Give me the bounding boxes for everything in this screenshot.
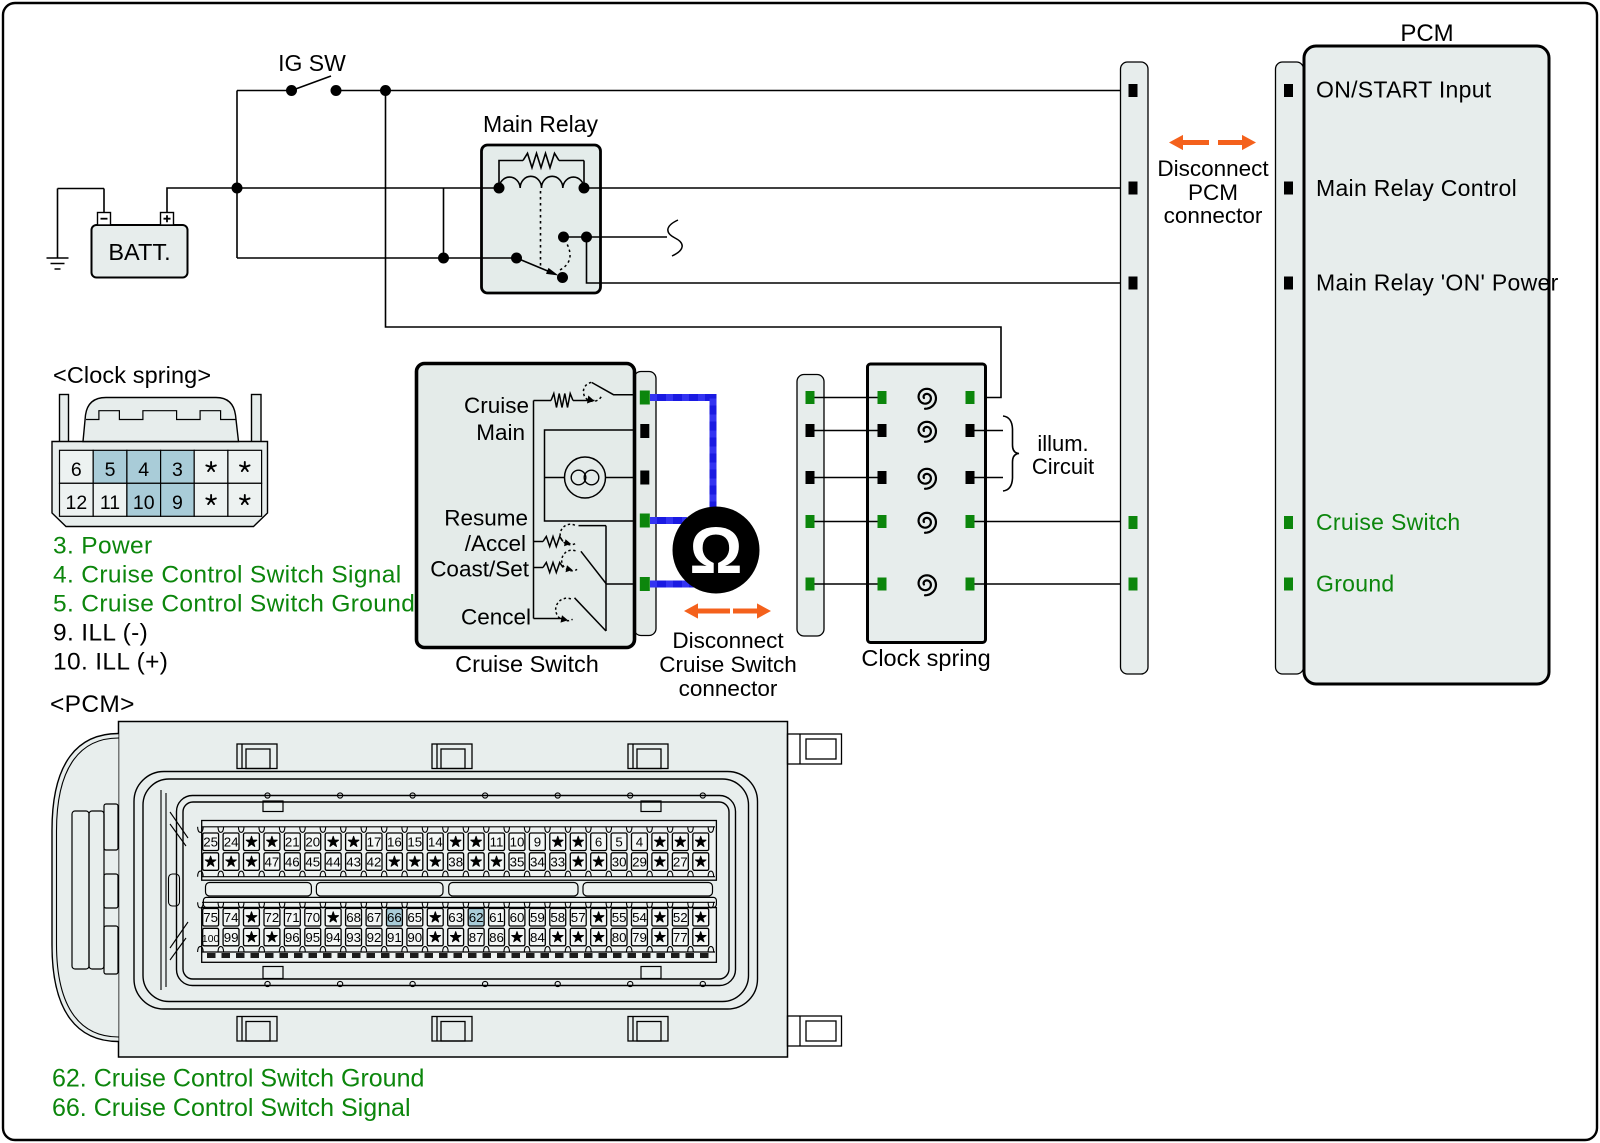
svg-text:Circuit: Circuit [1032, 454, 1094, 479]
svg-text:35: 35 [510, 855, 525, 870]
svg-text:34: 34 [530, 855, 545, 870]
svg-text:91: 91 [387, 930, 402, 945]
svg-text:55: 55 [612, 910, 627, 925]
svg-text:<Clock spring>: <Clock spring> [53, 362, 211, 388]
svg-text:21: 21 [285, 835, 300, 850]
svg-text:15: 15 [407, 835, 422, 850]
svg-text:IG SW: IG SW [278, 50, 346, 76]
svg-text:95: 95 [305, 930, 320, 945]
svg-text:11: 11 [100, 492, 120, 514]
svg-text:54: 54 [632, 910, 647, 925]
svg-text:58: 58 [550, 910, 565, 925]
svg-text:6: 6 [71, 459, 82, 481]
svg-text:77: 77 [673, 930, 688, 945]
svg-text:<PCM>: <PCM> [50, 691, 135, 718]
svg-text:43: 43 [346, 855, 361, 870]
svg-text:3. Power: 3. Power [53, 533, 152, 560]
svg-text:Ground: Ground [1316, 571, 1395, 597]
svg-text:93: 93 [346, 930, 361, 945]
svg-text:/Accel: /Accel [465, 531, 526, 556]
svg-text:27: 27 [673, 855, 688, 870]
svg-text:Resume: Resume [444, 506, 528, 531]
svg-text:38: 38 [448, 855, 463, 870]
svg-text:42: 42 [367, 855, 382, 870]
svg-text:99: 99 [224, 930, 239, 945]
svg-text:10: 10 [133, 492, 155, 514]
svg-text:47: 47 [265, 855, 280, 870]
svg-text:Disconnect: Disconnect [1157, 156, 1269, 181]
svg-text:ON/START Input: ON/START Input [1316, 77, 1492, 103]
svg-text:25: 25 [203, 835, 218, 850]
svg-text:14: 14 [428, 835, 443, 850]
svg-text:Main Relay 'ON' Power: Main Relay 'ON' Power [1316, 270, 1559, 296]
svg-text:96: 96 [285, 930, 300, 945]
svg-text:6: 6 [595, 835, 602, 850]
svg-text:connector: connector [1164, 203, 1263, 228]
svg-text:45: 45 [305, 855, 320, 870]
svg-text:62. Cruise Control Switch Grou: 62. Cruise Control Switch Ground [52, 1065, 424, 1093]
svg-text:9. ILL (-): 9. ILL (-) [53, 620, 148, 647]
svg-text:Main: Main [476, 420, 525, 445]
svg-text:71: 71 [285, 910, 300, 925]
svg-text:Main Relay: Main Relay [483, 111, 599, 137]
svg-text:90: 90 [407, 930, 422, 945]
svg-text:Cruise: Cruise [464, 393, 529, 418]
svg-text:10: 10 [510, 835, 525, 850]
svg-text:68: 68 [346, 910, 361, 925]
svg-text:4: 4 [636, 835, 643, 850]
svg-text:Disconnect: Disconnect [672, 628, 784, 653]
svg-text:Main Relay Control: Main Relay Control [1316, 175, 1517, 201]
svg-text:connector: connector [679, 676, 778, 701]
svg-text:Clock spring: Clock spring [861, 645, 990, 671]
svg-text:80: 80 [612, 930, 627, 945]
svg-text:63: 63 [448, 910, 463, 925]
svg-text:illum.: illum. [1037, 431, 1088, 456]
svg-text:94: 94 [326, 930, 341, 945]
svg-text:66. Cruise Control Switch Sign: 66. Cruise Control Switch Signal [52, 1094, 411, 1122]
svg-text:5: 5 [615, 835, 622, 850]
svg-text:60: 60 [510, 910, 525, 925]
svg-text:Cencel: Cencel [461, 605, 531, 630]
svg-text:PCM: PCM [1400, 20, 1453, 47]
svg-text:61: 61 [489, 910, 504, 925]
svg-text:57: 57 [571, 910, 586, 925]
svg-text:3: 3 [172, 459, 183, 481]
svg-text:44: 44 [326, 855, 341, 870]
svg-text:75: 75 [203, 910, 218, 925]
svg-text:70: 70 [305, 910, 320, 925]
svg-text:4. Cruise Control Switch Signa: 4. Cruise Control Switch Signal [53, 562, 402, 589]
svg-text:52: 52 [673, 910, 688, 925]
svg-text:PCM: PCM [1188, 180, 1238, 205]
svg-text:46: 46 [285, 855, 300, 870]
svg-text:5: 5 [105, 459, 116, 481]
svg-text:9: 9 [534, 835, 541, 850]
svg-text:33: 33 [550, 855, 565, 870]
svg-text:BATT.: BATT. [108, 239, 170, 265]
svg-text:4: 4 [138, 459, 149, 481]
svg-text:Cruise Switch: Cruise Switch [1316, 509, 1461, 535]
svg-text:74: 74 [224, 910, 239, 925]
svg-text:87: 87 [469, 930, 484, 945]
svg-text:Cruise Switch: Cruise Switch [659, 652, 797, 677]
svg-text:66: 66 [387, 910, 402, 925]
svg-text:24: 24 [224, 835, 239, 850]
svg-text:30: 30 [612, 855, 627, 870]
svg-text:12: 12 [65, 492, 87, 514]
svg-text:62: 62 [469, 910, 484, 925]
svg-text:65: 65 [407, 910, 422, 925]
svg-text:29: 29 [632, 855, 647, 870]
svg-text:5. Cruise Control Switch Groun: 5. Cruise Control Switch Ground [53, 591, 415, 618]
svg-text:20: 20 [305, 835, 320, 850]
svg-text:Cruise Switch: Cruise Switch [455, 651, 599, 677]
svg-text:92: 92 [367, 930, 382, 945]
svg-text:84: 84 [530, 930, 545, 945]
svg-text:17: 17 [367, 835, 382, 850]
svg-text:59: 59 [530, 910, 545, 925]
svg-text:Coast/Set: Coast/Set [430, 557, 530, 582]
svg-text:67: 67 [367, 910, 382, 925]
svg-text:72: 72 [265, 910, 280, 925]
svg-text:10. ILL (+): 10. ILL (+) [53, 649, 168, 676]
svg-text:86: 86 [489, 930, 504, 945]
svg-text:79: 79 [632, 930, 647, 945]
svg-text:Ω: Ω [690, 513, 743, 587]
svg-text:16: 16 [387, 835, 402, 850]
svg-text:11: 11 [490, 835, 504, 850]
svg-text:100: 100 [202, 934, 220, 945]
svg-text:9: 9 [172, 492, 183, 514]
